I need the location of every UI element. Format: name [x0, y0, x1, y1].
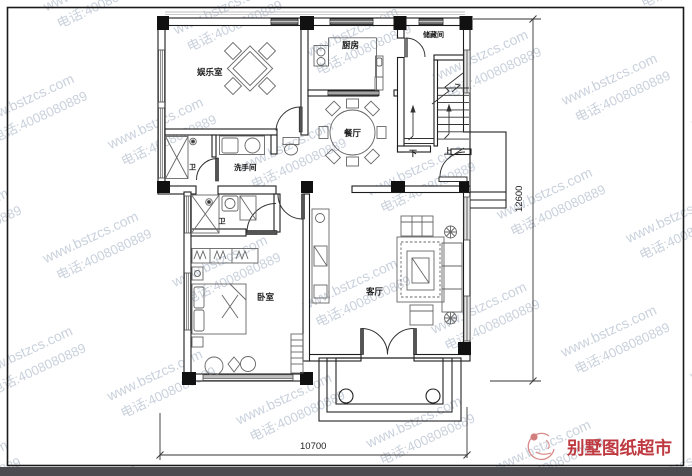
- svg-text:厨房: 厨房: [342, 40, 359, 50]
- svg-text:卫: 卫: [219, 218, 226, 226]
- svg-text:餐厅: 餐厅: [343, 128, 362, 138]
- svg-text:12600: 12600: [514, 186, 525, 212]
- svg-text:卫: 卫: [189, 164, 196, 172]
- svg-text:别墅图纸超市: 别墅图纸超市: [566, 438, 672, 458]
- svg-text:洗手间: 洗手间: [234, 162, 257, 172]
- svg-text:储藏间: 储藏间: [422, 30, 444, 39]
- svg-text:上: 上: [444, 146, 452, 156]
- svg-text:下: 下: [409, 149, 417, 158]
- svg-text:10700: 10700: [300, 441, 326, 452]
- svg-text:客厅: 客厅: [365, 287, 384, 297]
- svg-text:卧室: 卧室: [257, 292, 275, 302]
- svg-text:娱乐室: 娱乐室: [197, 67, 223, 77]
